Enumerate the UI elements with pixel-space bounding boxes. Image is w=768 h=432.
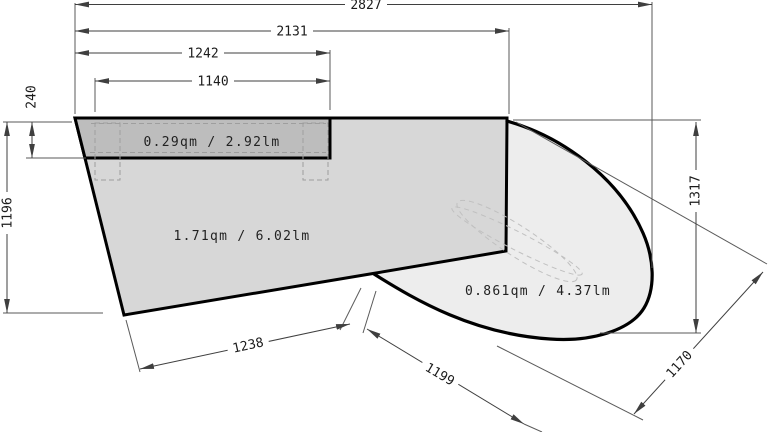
dim-value-1140: 1140 <box>197 75 228 90</box>
strip-area-label: 0.29qm / 2.92lm <box>144 135 281 150</box>
dim-value-1317: 1317 <box>689 175 704 206</box>
dim-value-2827: 2827 <box>350 0 381 13</box>
ext-tip-a <box>340 288 361 330</box>
dimension-text-1238: 1238 <box>226 333 270 358</box>
dim-value-2131: 2131 <box>276 25 307 40</box>
ext-1238-left <box>126 320 140 372</box>
dimension-text-1140: 1140 <box>192 74 234 90</box>
ext-1199-end <box>524 424 542 432</box>
dimension-text-1170: 1170 <box>659 343 699 385</box>
dimension-text-2827: 2827 <box>345 0 387 13</box>
dim-value-1238: 1238 <box>231 335 265 356</box>
dim-value-1199: 1199 <box>422 360 457 389</box>
dim-value-240: 240 <box>25 85 40 108</box>
dimension-line-1170 <box>634 272 763 414</box>
ext-tip-b <box>363 291 376 333</box>
dimension-text-1317: 1317 <box>688 170 704 212</box>
dimension-text-2131: 2131 <box>271 24 313 40</box>
dim-value-1242: 1242 <box>187 47 218 62</box>
dimension-text-240: 240 <box>24 80 40 114</box>
dimension-text-1242: 1242 <box>182 46 224 62</box>
drawing-canvas: 2827 2131 1242 1140 240 1196 1317 1238 1… <box>0 0 768 432</box>
cad-drawing-page: 2827 2131 1242 1140 240 1196 1317 1238 1… <box>0 0 768 432</box>
curve-area-label: 0.861qm / 4.37lm <box>465 284 611 299</box>
dimension-text-1196: 1196 <box>0 192 16 234</box>
ext-1170-lower <box>497 346 643 420</box>
main-area-label: 1.71qm / 6.02lm <box>174 229 311 244</box>
dim-value-1196: 1196 <box>1 197 16 228</box>
dimension-text-1199: 1199 <box>418 357 462 392</box>
